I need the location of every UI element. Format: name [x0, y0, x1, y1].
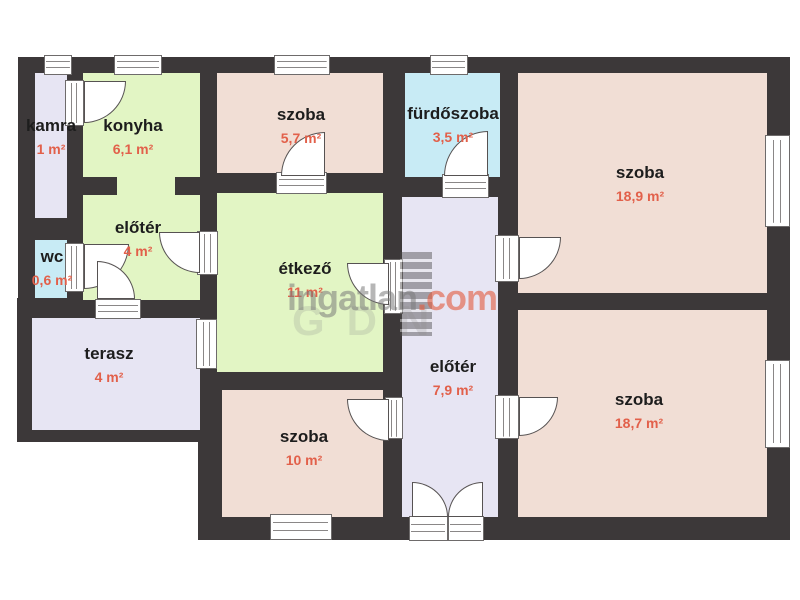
room-name: szoba [277, 105, 325, 125]
room-area: 18,9 m² [616, 188, 664, 204]
room-name: szoba [615, 390, 663, 410]
room-name: wc [32, 247, 72, 267]
doorframe-entry-left [409, 516, 448, 541]
room-name: konyha [103, 116, 163, 136]
room-area: 1 m² [26, 141, 76, 157]
room-name: előtér [430, 357, 476, 377]
room-area: 10 m² [280, 452, 328, 468]
window-terasz-etkezo [196, 319, 217, 369]
doorframe-szoba-18-7 [495, 395, 519, 439]
label-szoba-18-7: szoba 18,7 m² [615, 390, 663, 431]
watermark-tld: .com [417, 277, 497, 318]
room-name: kamra [26, 116, 76, 136]
doorframe-terasz [95, 299, 141, 319]
doorframe-eloter-etkezo [197, 231, 218, 275]
window-szoba-10-bottom [270, 514, 332, 540]
label-konyha: konyha 6,1 m² [103, 116, 163, 157]
wall-stub-right [175, 177, 200, 195]
window-szoba-5-7-top [274, 55, 330, 75]
label-szoba-18-9: szoba 18,9 m² [616, 163, 664, 204]
label-wc: wc 0,6 m² [32, 247, 72, 288]
window-szoba-18-7-right [765, 360, 790, 448]
label-eloter-7-9: előtér 7,9 m² [430, 357, 476, 398]
wall-stub-left [83, 177, 117, 195]
label-szoba-5-7: szoba 5,7 m² [277, 105, 325, 146]
room-name: fürdőszoba [407, 104, 499, 124]
room-area: 4 m² [84, 369, 133, 385]
room-name: előtér [115, 218, 161, 238]
window-konyha-top [114, 55, 162, 75]
window-kamra-top [44, 55, 72, 75]
room-area: 6,1 m² [103, 141, 163, 157]
label-kamra: kamra 1 m² [26, 116, 76, 157]
label-eloter-4: előtér 4 m² [115, 218, 161, 259]
doorframe-entry-right [448, 516, 484, 541]
doorframe-furdoszoba [442, 174, 489, 198]
watermark-brand: ingatlan [287, 277, 417, 318]
room-name: szoba [616, 163, 664, 183]
room-area: 18,7 m² [615, 415, 663, 431]
floor-plan: kamra 1 m² konyha 6,1 m² szoba 5,7 m² fü… [0, 0, 800, 600]
room-name: terasz [84, 344, 133, 364]
label-szoba-10: szoba 10 m² [280, 427, 328, 468]
label-furdoszoba: fürdőszoba 3,5 m² [407, 104, 499, 145]
window-szoba-18-9-right [765, 135, 790, 227]
window-furdoszoba-top [430, 55, 468, 75]
room-name: szoba [280, 427, 328, 447]
room-area: 5,7 m² [277, 130, 325, 146]
room-area: 3,5 m² [407, 129, 499, 145]
room-area: 4 m² [115, 243, 161, 259]
room-name: étkező [279, 259, 332, 279]
room-area: 7,9 m² [430, 382, 476, 398]
doorframe-szoba-18-9 [495, 235, 519, 282]
watermark-ingatlan-com: ingatlan.com [287, 277, 497, 319]
room-area: 0,6 m² [32, 272, 72, 288]
label-terasz: terasz 4 m² [84, 344, 133, 385]
